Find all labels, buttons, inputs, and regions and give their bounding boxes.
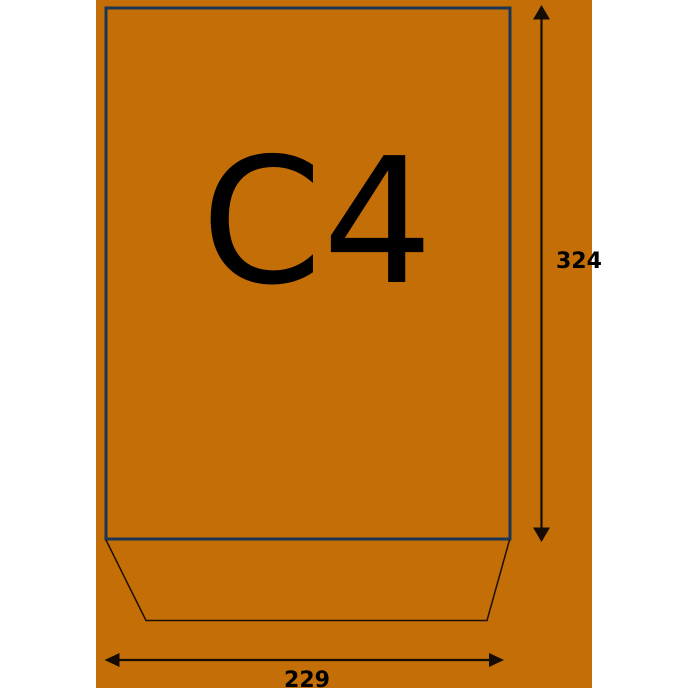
envelope-format-label: C4 (201, 121, 433, 324)
height-dimension-label: 324 (556, 249, 602, 274)
width-dimension-label: 229 (284, 668, 330, 688)
envelope-size-diagram: C4 324 229 (0, 0, 688, 688)
diagram-canvas: C4 324 229 (0, 0, 688, 688)
diagram-background (96, 0, 592, 688)
